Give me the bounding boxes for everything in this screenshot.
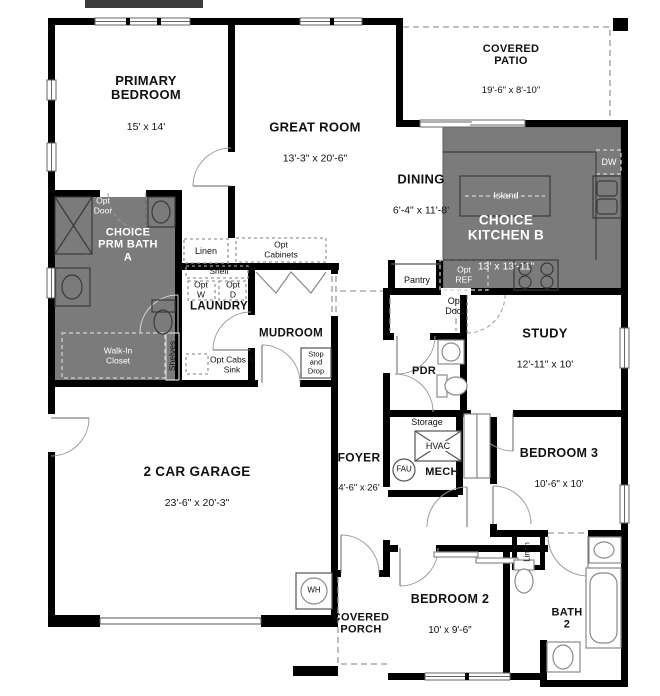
opt-cab-box <box>186 354 208 374</box>
fau-unit <box>393 459 415 481</box>
floor-plan-drawing <box>0 0 660 696</box>
opt-washer-box <box>188 281 215 300</box>
sink-icon <box>553 645 573 669</box>
stop-and-drop-box <box>301 348 331 378</box>
toilet-icon <box>515 569 533 593</box>
opt-cabinets-box <box>236 238 326 262</box>
linen-cabinet <box>184 239 228 263</box>
sink-icon <box>594 542 614 558</box>
bedroom3-closet <box>464 414 477 478</box>
patio-outline <box>403 27 610 120</box>
floor-plan: PRIMARY BEDROOM 15' x 14' GREAT ROOM 13'… <box>0 0 660 696</box>
wh-circle <box>301 578 327 604</box>
patio-post <box>613 18 628 31</box>
bedroom2-closet <box>434 552 478 557</box>
roof-line <box>85 0 203 8</box>
porch-outline <box>338 577 388 664</box>
mudroom-hooks <box>256 272 326 293</box>
toilet-icon <box>445 377 467 395</box>
fixtures <box>256 264 621 672</box>
sink-icon <box>442 343 460 361</box>
opt-dryer-box <box>219 281 246 300</box>
